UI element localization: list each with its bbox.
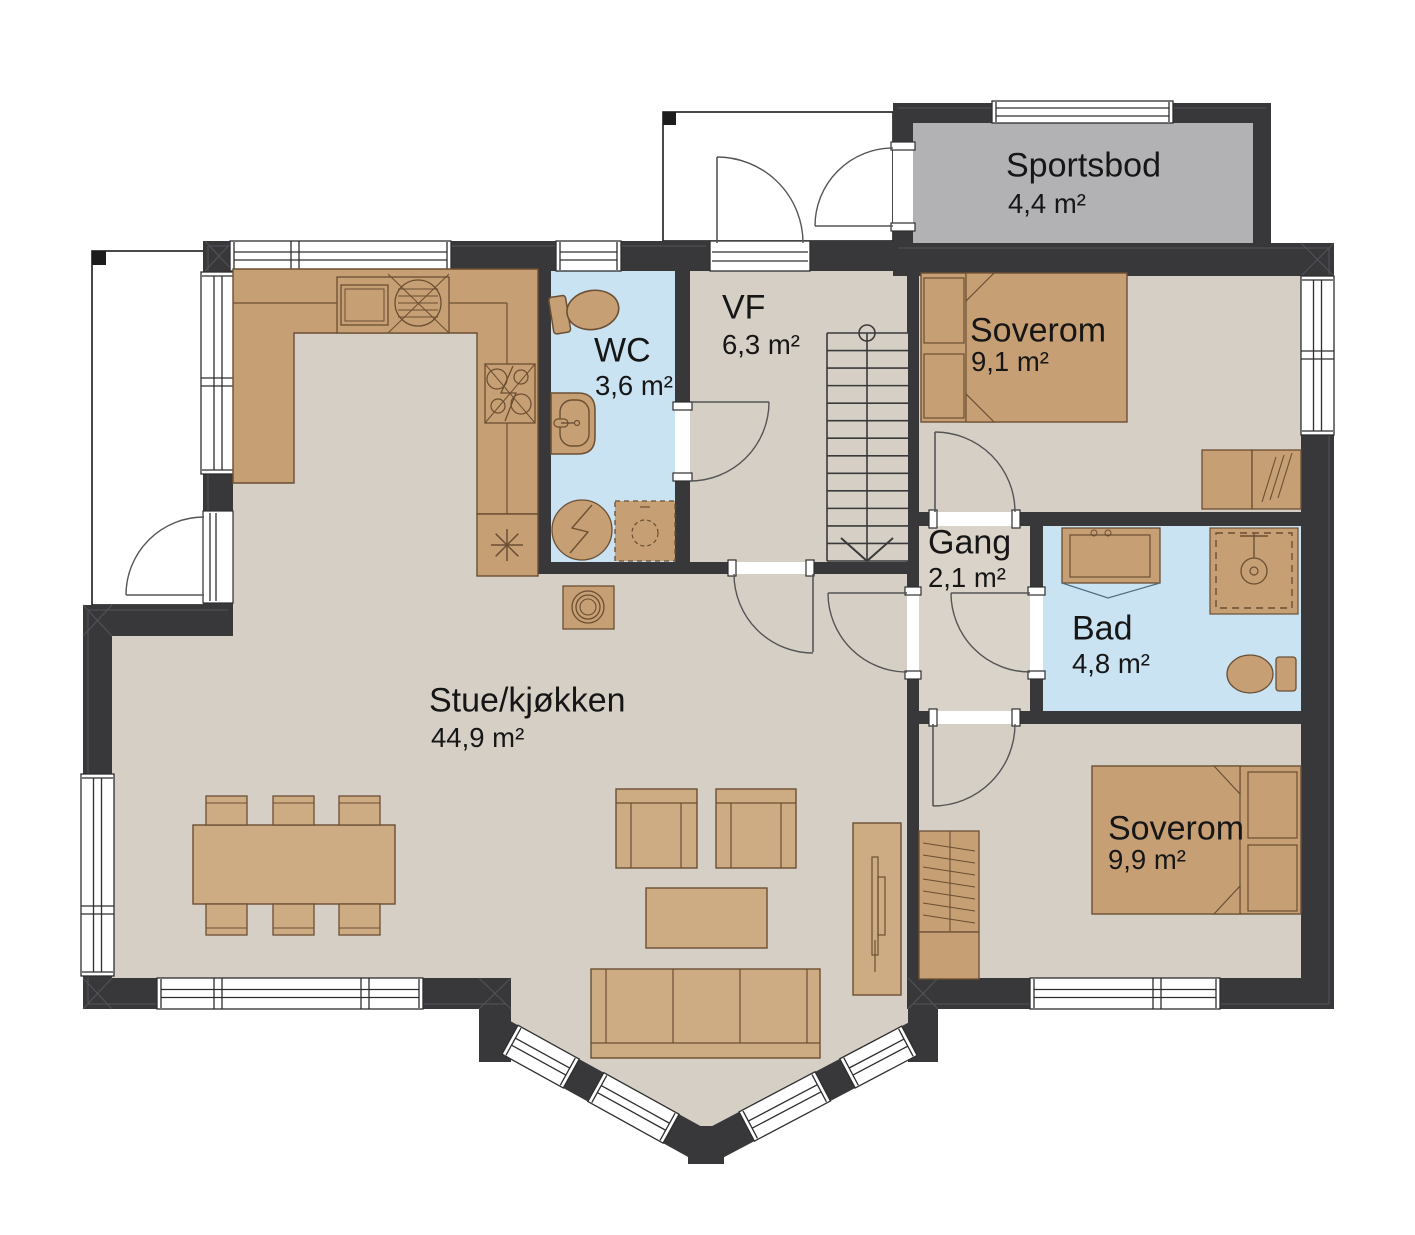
svg-text:3,6 m²: 3,6 m² bbox=[595, 370, 673, 401]
svg-text:WC: WC bbox=[594, 332, 651, 370]
svg-text:Bad: Bad bbox=[1072, 610, 1133, 648]
svg-text:Gang: Gang bbox=[928, 524, 1011, 562]
svg-text:4,8 m²: 4,8 m² bbox=[1072, 648, 1150, 679]
svg-text:9,9 m²: 9,9 m² bbox=[1108, 844, 1186, 875]
svg-text:Soverom: Soverom bbox=[970, 312, 1106, 350]
svg-text:4,4 m²: 4,4 m² bbox=[1008, 188, 1086, 219]
svg-text:Soverom: Soverom bbox=[1108, 810, 1244, 848]
svg-text:Sportsbod: Sportsbod bbox=[1006, 147, 1161, 185]
svg-text:44,9 m²: 44,9 m² bbox=[431, 722, 524, 753]
svg-text:2,1 m²: 2,1 m² bbox=[928, 562, 1006, 593]
svg-text:9,1 m²: 9,1 m² bbox=[971, 346, 1049, 377]
svg-text:Stue/kjøkken: Stue/kjøkken bbox=[429, 682, 626, 720]
svg-text:VF: VF bbox=[722, 289, 765, 327]
svg-text:6,3 m²: 6,3 m² bbox=[722, 329, 800, 360]
